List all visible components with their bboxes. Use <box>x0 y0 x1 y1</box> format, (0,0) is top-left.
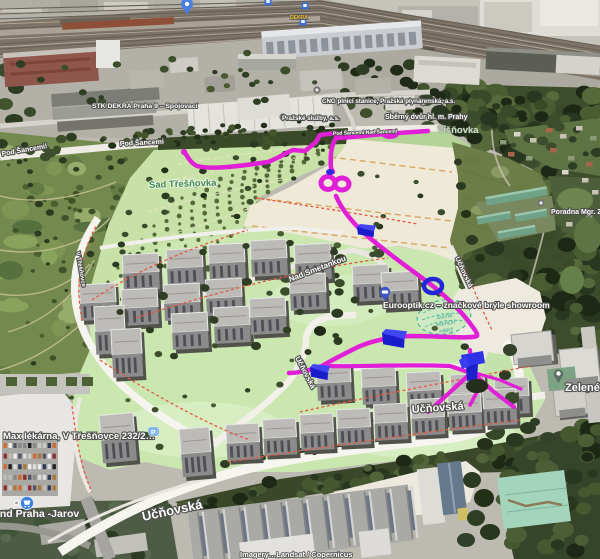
svg-text:Eurooptik.cz – značkové brýle: Eurooptik.cz – značkové brýle showroom <box>383 300 550 310</box>
svg-text:Zelené m: Zelené m <box>565 382 600 394</box>
svg-text:Pražské služby, a.s.: Pražské služby, a.s. <box>282 115 340 122</box>
svg-text:Imagery…Landsat / Copernicus: Imagery…Landsat / Copernicus <box>240 550 353 559</box>
svg-text:Max lékárna, V Třešňovce 232/2: Max lékárna, V Třešňovce 232/2… <box>3 431 155 442</box>
svg-text:CNG plnicí stanice, Pražská pl: CNG plnicí stanice, Pražská plynárenská,… <box>322 98 455 105</box>
svg-text:Sběrný dvůr hl. m. Prahy: Sběrný dvůr hl. m. Prahy <box>385 113 468 121</box>
svg-text:STK DEKRA Praha 9 – Spojovací: STK DEKRA Praha 9 – Spojovací <box>92 103 199 110</box>
svg-text:Poradna Mgr. Zá: Poradna Mgr. Zá <box>551 209 600 216</box>
svg-text:DEKRA: DEKRA <box>290 15 308 21</box>
svg-text:Višňovka: Višňovka <box>437 125 479 136</box>
svg-text:and Praha -Jarov: and Praha -Jarov <box>0 508 79 520</box>
